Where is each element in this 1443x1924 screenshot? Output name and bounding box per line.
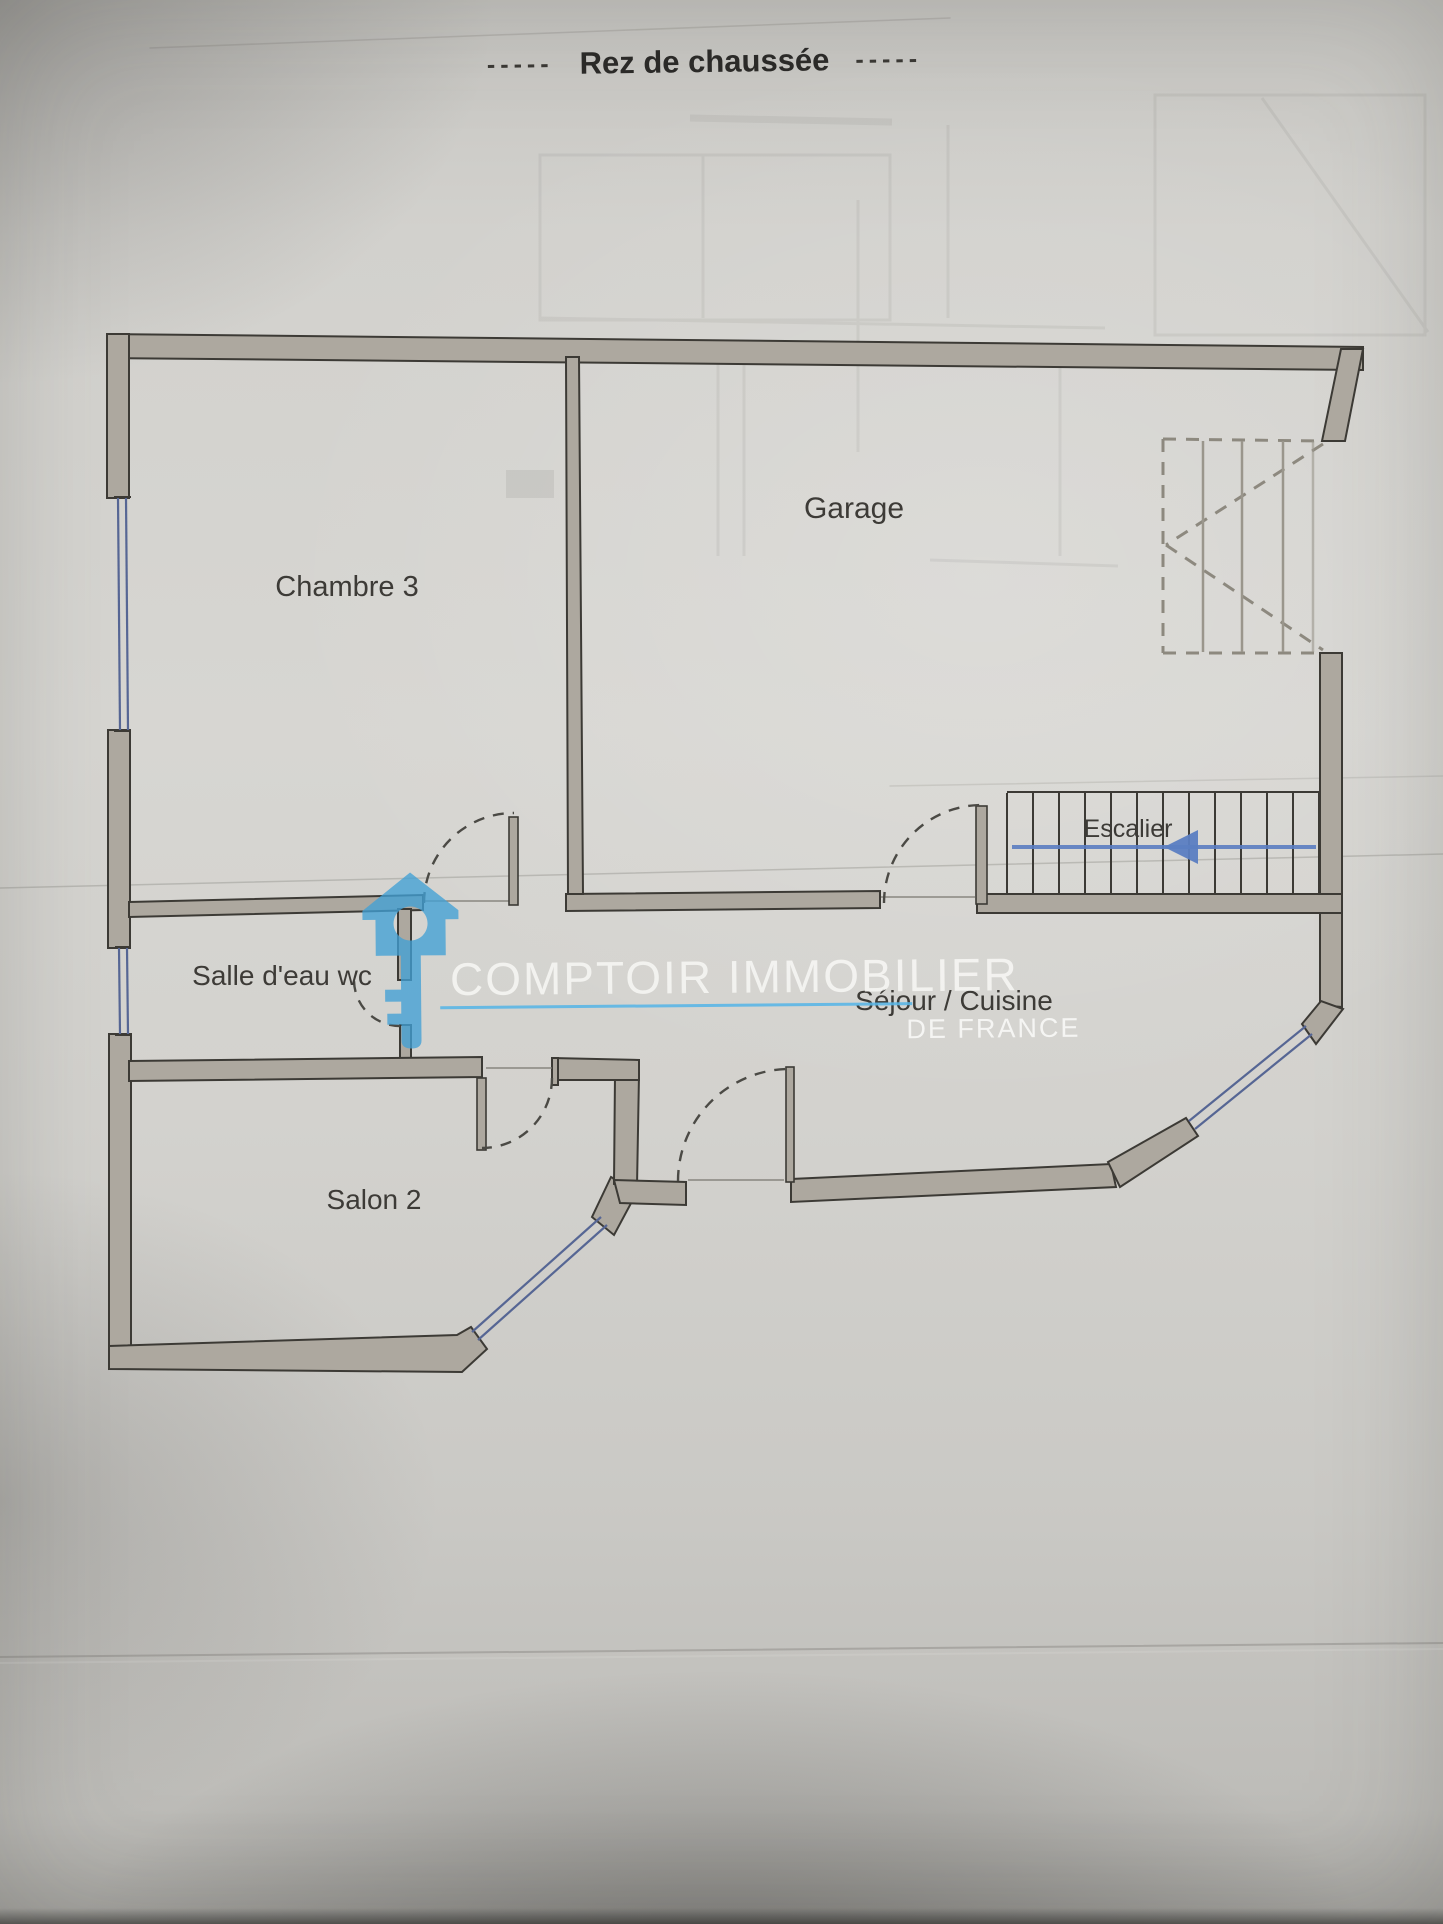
window-chambre-left bbox=[126, 498, 128, 730]
wall-salon-top-right bbox=[552, 1058, 639, 1080]
window-salledeau-left bbox=[119, 948, 120, 1034]
wall-salon-right bbox=[614, 1075, 639, 1186]
window-sejour-bay bbox=[1189, 1026, 1306, 1121]
window-sejour-bay bbox=[1195, 1034, 1312, 1129]
room-label-chambre3: Chambre 3 bbox=[275, 571, 418, 603]
room-label-salledeau: Salle d'eau wc bbox=[192, 960, 372, 991]
wall-sejour-bottom bbox=[791, 1164, 1116, 1202]
window-salon-bay bbox=[472, 1217, 601, 1332]
wall-salledeau-bottom bbox=[129, 1057, 482, 1081]
room-label-sejour: Séjour / Cuisine bbox=[855, 985, 1053, 1016]
door-leaf-salon bbox=[477, 1078, 486, 1150]
wall-left-top bbox=[107, 334, 129, 498]
bleed-through-blob bbox=[506, 470, 554, 498]
door-leaf-garage bbox=[976, 806, 987, 904]
bleed-through-ghosts bbox=[540, 95, 1428, 566]
wall-chambre-bottom bbox=[129, 895, 423, 917]
wall-divider-chambre-garage bbox=[566, 357, 583, 894]
room-label-garage: Garage bbox=[804, 492, 904, 525]
window-salledeau-left bbox=[127, 948, 128, 1034]
wall-garage-hall bbox=[566, 891, 880, 911]
walls bbox=[107, 334, 1363, 1372]
room-label-salon2: Salon 2 bbox=[327, 1184, 422, 1215]
staircase-upper-dashed bbox=[1163, 439, 1323, 653]
door-leaf-sejour-ext bbox=[786, 1067, 794, 1182]
door-arc-salon bbox=[482, 1078, 552, 1148]
window-chambre-left bbox=[118, 498, 120, 730]
floor-plan-drawing: Chambre 3 Garage Salle d'eau wc Séjour /… bbox=[0, 0, 1443, 1924]
wall-left-bottom bbox=[109, 1034, 131, 1368]
wall-sejour-door-left bbox=[614, 1180, 686, 1205]
wall-salledeau-right-upper bbox=[398, 909, 411, 980]
wall-salon-bottom bbox=[109, 1327, 487, 1372]
wall-below-stairs bbox=[977, 894, 1342, 913]
wall-right-lower bbox=[1320, 653, 1342, 1007]
window-salon-bay bbox=[478, 1225, 607, 1340]
door-arc-sejour-ext bbox=[678, 1069, 790, 1181]
room-label-escalier: Escalier bbox=[1084, 815, 1173, 843]
windows bbox=[118, 498, 1312, 1340]
wall-left-mid bbox=[108, 730, 130, 948]
wall-diagonal-sejour-left bbox=[1108, 1118, 1198, 1187]
wall-top-exterior bbox=[107, 334, 1363, 370]
paper-creases bbox=[0, 18, 1443, 1663]
door-thresholds bbox=[424, 897, 975, 1180]
door-arc-garage bbox=[884, 805, 982, 903]
door-arc-chambre bbox=[424, 813, 514, 903]
photographed-floor-plan: ----- Rez de chaussée ----- bbox=[0, 0, 1443, 1924]
door-leaf-chambre bbox=[509, 817, 518, 905]
